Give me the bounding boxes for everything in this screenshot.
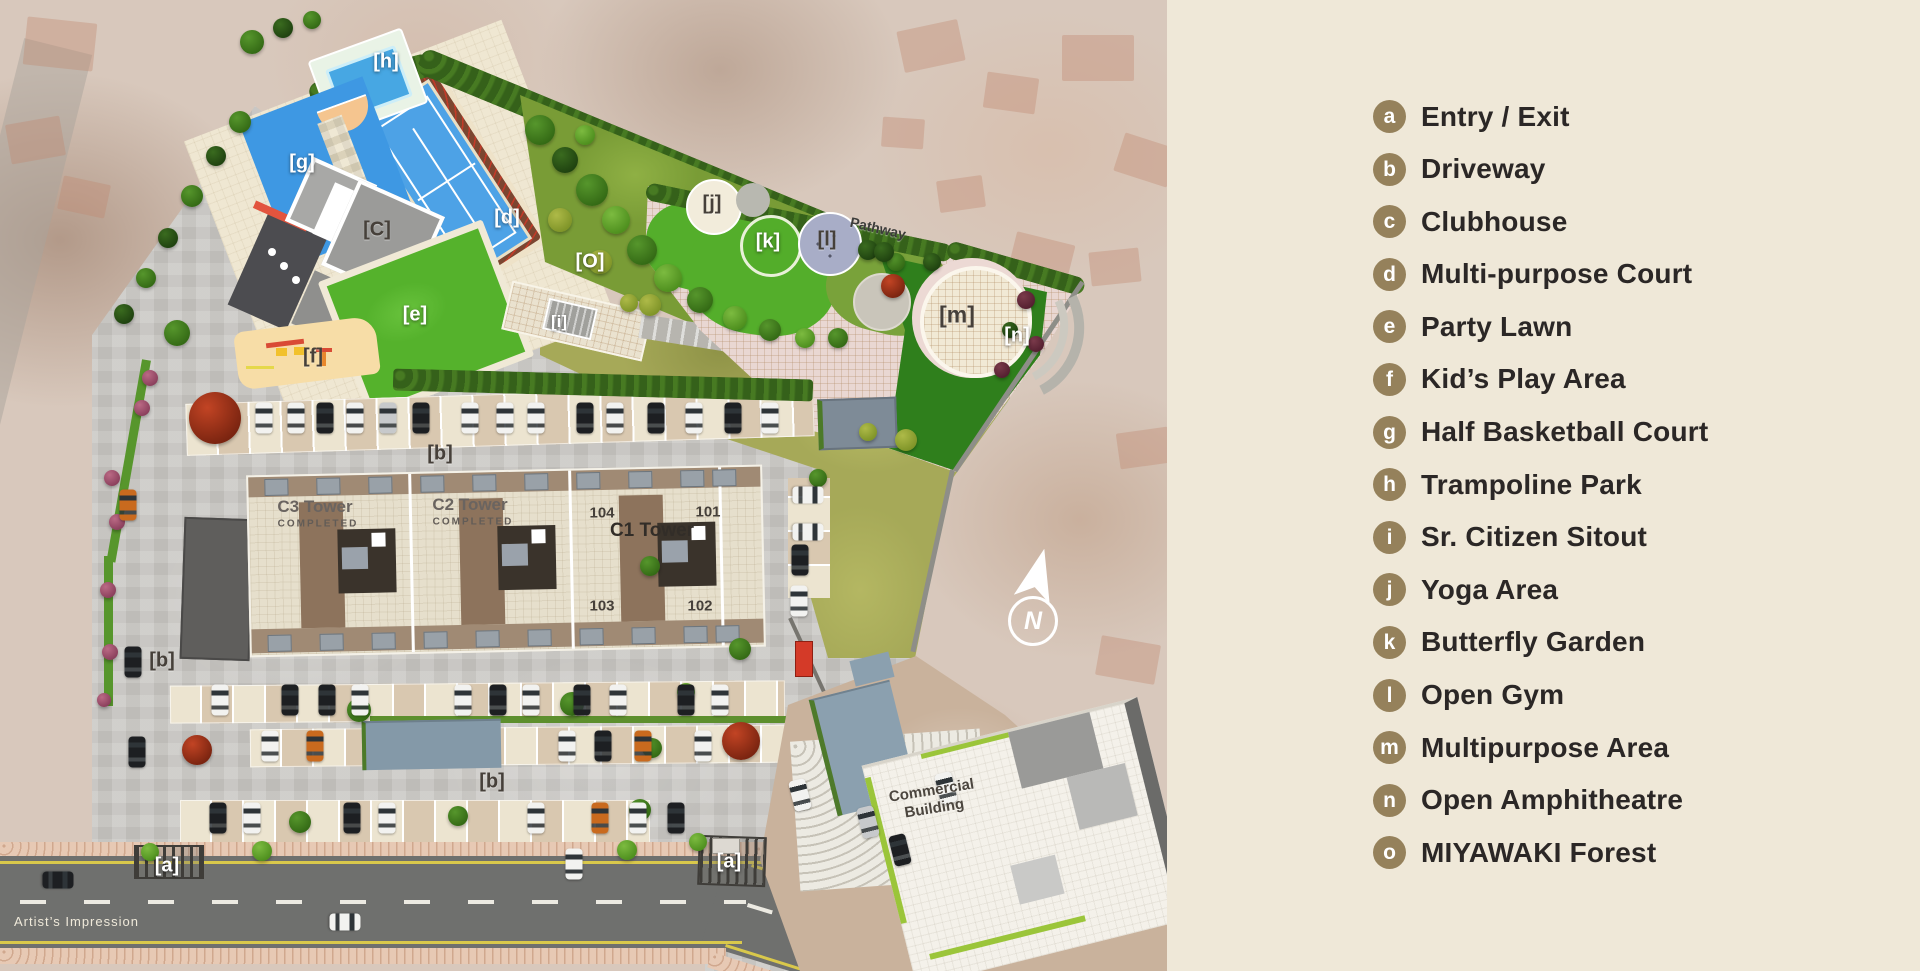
site-plan-screenshot: N [h] [g] [C] [d] [e] [f] [O] [i] [j] [k… — [0, 0, 1920, 971]
car — [559, 731, 576, 762]
marker-b1: [b] — [427, 443, 453, 466]
clubhouse-skylight — [280, 262, 288, 270]
tree — [448, 806, 468, 826]
car — [210, 803, 227, 834]
legend-badge-k: k — [1373, 626, 1406, 659]
car — [43, 872, 74, 889]
legend-item-open-gym: lOpen Gym — [1373, 679, 1708, 712]
flower-bush — [182, 735, 212, 765]
tree — [229, 111, 251, 133]
tree — [627, 235, 657, 265]
legend-badge-o: o — [1373, 836, 1406, 869]
legend-item-party-lawn: eParty Lawn — [1373, 310, 1708, 343]
legend-label-miyawaki-forest: MIYAWAKI Forest — [1421, 837, 1656, 869]
legend-item-sr-citizen-sitout: iSr. Citizen Sitout — [1373, 521, 1708, 554]
legend-item-miyawaki-forest: oMIYAWAKI Forest — [1373, 836, 1708, 869]
legend-item-trampoline-park: hTrampoline Park — [1373, 468, 1708, 501]
flower-bush — [620, 294, 638, 312]
tree — [809, 469, 827, 487]
car — [528, 803, 545, 834]
legend-badge-m: m — [1373, 731, 1406, 764]
clubhouse-skylight — [268, 248, 276, 256]
car — [791, 586, 808, 617]
car — [678, 685, 695, 716]
flower-bush — [881, 274, 905, 298]
legend-badge-j: j — [1373, 573, 1406, 606]
tower-c2-status: COMPLETED — [433, 517, 514, 528]
legend-label-sr-citizen-sitout: Sr. Citizen Sitout — [1421, 521, 1647, 553]
tree — [548, 208, 572, 232]
clubhouse-skylight — [292, 276, 300, 284]
legend-item-clubhouse: cClubhouse — [1373, 205, 1708, 238]
flower-bush — [104, 470, 120, 486]
car — [610, 685, 627, 716]
tower-c3-name: C3 Tower — [277, 497, 352, 517]
car — [725, 403, 742, 434]
tree — [639, 294, 661, 316]
tree — [575, 125, 595, 145]
unit-102: 102 — [687, 598, 712, 615]
unit-101: 101 — [695, 504, 720, 521]
car — [462, 403, 479, 434]
legend-badge-h: h — [1373, 468, 1406, 501]
car — [528, 403, 545, 434]
car — [574, 685, 591, 716]
flower-bush — [859, 423, 877, 441]
tree — [759, 319, 781, 341]
car — [635, 731, 652, 762]
tree — [206, 146, 226, 166]
legend-badge-b: b — [1373, 153, 1406, 186]
legend-label-butterfly-garden: Butterfly Garden — [1421, 626, 1645, 658]
car — [595, 731, 612, 762]
legend-label-trampoline-park: Trampoline Park — [1421, 469, 1642, 501]
car — [317, 403, 334, 434]
legend-label-kids-play-area: Kid’s Play Area — [1421, 363, 1626, 395]
compass-north-letter: N — [1024, 607, 1042, 636]
flower-bush — [1028, 336, 1044, 352]
legend-badge-f: f — [1373, 363, 1406, 396]
marker-j: [j] — [703, 193, 722, 216]
marker-l: [l] — [818, 229, 837, 252]
marker-m: [m] — [939, 302, 975, 329]
legend-badge-i: i — [1373, 521, 1406, 554]
legend-item-half-basketball-court: gHalf Basketball Court — [1373, 416, 1708, 449]
car — [648, 403, 665, 434]
marker-b2: [b] — [149, 650, 175, 673]
legend-badge-a: a — [1373, 100, 1406, 133]
car — [712, 685, 729, 716]
car — [288, 403, 305, 434]
car — [352, 685, 369, 716]
legend-label-open-amphitheatre: Open Amphitheatre — [1421, 784, 1683, 816]
legend-badge-g: g — [1373, 416, 1406, 449]
legend-item-entry-exit: aEntry / Exit — [1373, 100, 1708, 133]
car — [244, 803, 261, 834]
car — [566, 849, 583, 880]
car — [129, 737, 146, 768]
marker-b3: [b] — [479, 771, 505, 794]
marker-f: [f] — [303, 346, 323, 369]
legend-item-open-amphitheatre: nOpen Amphitheatre — [1373, 784, 1708, 817]
tree — [181, 185, 203, 207]
tree — [602, 206, 630, 234]
legend-panel: aEntry / Exit bDriveway cClubhouse dMult… — [1167, 0, 1920, 971]
car — [686, 403, 703, 434]
marker-k: [k] — [756, 231, 780, 254]
pergola-roof — [362, 719, 502, 770]
marker-d: [d] — [494, 207, 520, 230]
car — [762, 403, 779, 434]
flower-bush — [142, 370, 158, 386]
master-plan-map: N [h] [g] [C] [d] [e] [f] [O] [i] [j] [k… — [0, 0, 1167, 971]
tree — [164, 320, 190, 346]
legend-label-multi-purpose-court: Multi-purpose Court — [1421, 258, 1692, 290]
legend-label-driveway: Driveway — [1421, 153, 1546, 185]
car — [577, 403, 594, 434]
tree — [654, 264, 682, 292]
tree — [240, 30, 264, 54]
flower-bush — [134, 400, 150, 416]
car — [793, 524, 824, 541]
tree — [576, 174, 608, 206]
flower-bush — [722, 722, 760, 760]
marker-c: [C] — [363, 219, 391, 242]
landscape-decor — [0, 0, 1167, 971]
car — [523, 685, 540, 716]
tree — [828, 328, 848, 348]
tower-c1-name: C1 Tower — [610, 520, 694, 542]
legend-label-multipurpose-area: Multipurpose Area — [1421, 732, 1669, 764]
legend-item-yoga-area: jYoga Area — [1373, 573, 1708, 606]
car — [630, 803, 647, 834]
tree — [525, 115, 555, 145]
car — [380, 403, 397, 434]
tree — [874, 242, 894, 262]
car — [592, 803, 609, 834]
car — [319, 685, 336, 716]
flower-bush — [189, 392, 241, 444]
car — [413, 403, 430, 434]
marker-n: [n] — [1004, 325, 1030, 348]
legend-item-butterfly-garden: kButterfly Garden — [1373, 626, 1708, 659]
flower-bush — [1017, 291, 1035, 309]
flower-bush — [102, 644, 118, 660]
play-equipment-seat — [276, 348, 287, 356]
unit-104: 104 — [589, 505, 614, 522]
legend-item-driveway: bDriveway — [1373, 153, 1708, 186]
legend-badge-c: c — [1373, 205, 1406, 238]
legend-label-yoga-area: Yoga Area — [1421, 574, 1558, 606]
tree — [303, 11, 321, 29]
legend-list: aEntry / Exit bDriveway cClubhouse dMult… — [1373, 100, 1708, 869]
legend-label-half-basketball-court: Half Basketball Court — [1421, 416, 1708, 448]
tree — [795, 328, 815, 348]
flower-bush — [100, 582, 116, 598]
car — [379, 803, 396, 834]
tree — [158, 228, 178, 248]
tree — [923, 253, 941, 271]
fire-hydrant-cabinet — [795, 641, 813, 677]
flower-bush — [895, 429, 917, 451]
car — [307, 731, 324, 762]
tower-c2-name: C2 Tower — [432, 495, 507, 515]
tree — [552, 147, 578, 173]
car — [455, 685, 472, 716]
marker-h: [h] — [373, 51, 399, 74]
unit-103: 103 — [589, 598, 614, 615]
legend-item-multi-purpose-court: dMulti-purpose Court — [1373, 258, 1708, 291]
legend-item-multipurpose-area: mMultipurpose Area — [1373, 731, 1708, 764]
marker-g: [g] — [289, 152, 315, 175]
tree — [729, 638, 751, 660]
car — [344, 803, 361, 834]
flower-bush — [994, 362, 1010, 378]
marker-i: [i] — [551, 312, 567, 332]
tree — [136, 268, 156, 288]
marker-a1: [a] — [155, 855, 179, 878]
car — [120, 490, 137, 521]
car — [497, 403, 514, 434]
legend-label-clubhouse: Clubhouse — [1421, 206, 1567, 238]
car — [347, 403, 364, 434]
tree — [114, 304, 134, 324]
tree — [289, 811, 311, 833]
car — [856, 805, 880, 839]
artists-impression-caption: Artist’s Impression — [14, 914, 139, 929]
car — [125, 647, 142, 678]
car — [607, 403, 624, 434]
tree — [723, 306, 747, 330]
car — [282, 685, 299, 716]
car — [330, 914, 361, 931]
tree — [617, 840, 637, 860]
car — [212, 685, 229, 716]
car — [888, 833, 912, 867]
legend-badge-d: d — [1373, 258, 1406, 291]
flower-bush — [97, 693, 111, 707]
legend-label-open-gym: Open Gym — [1421, 679, 1564, 711]
tree — [252, 841, 272, 861]
legend-item-kids-play-area: fKid’s Play Area — [1373, 363, 1708, 396]
car — [793, 487, 824, 504]
tree — [273, 18, 293, 38]
car — [262, 731, 279, 762]
marker-e: [e] — [403, 304, 427, 327]
car — [256, 403, 273, 434]
legend-label-entry-exit: Entry / Exit — [1421, 101, 1570, 133]
tree — [640, 556, 660, 576]
compass-icon: N — [1008, 596, 1058, 646]
car — [788, 778, 812, 812]
tower-c3-status: COMPLETED — [278, 519, 359, 530]
car — [695, 731, 712, 762]
marker-o: [O] — [576, 251, 605, 274]
marker-a2: [a] — [717, 851, 741, 874]
tree — [689, 833, 707, 851]
legend-badge-n: n — [1373, 784, 1406, 817]
car — [792, 545, 809, 576]
legend-badge-e: e — [1373, 310, 1406, 343]
legend-badge-l: l — [1373, 679, 1406, 712]
car — [668, 803, 685, 834]
play-equipment-line — [246, 366, 274, 369]
car — [490, 685, 507, 716]
legend-label-party-lawn: Party Lawn — [1421, 311, 1572, 343]
tree — [687, 287, 713, 313]
